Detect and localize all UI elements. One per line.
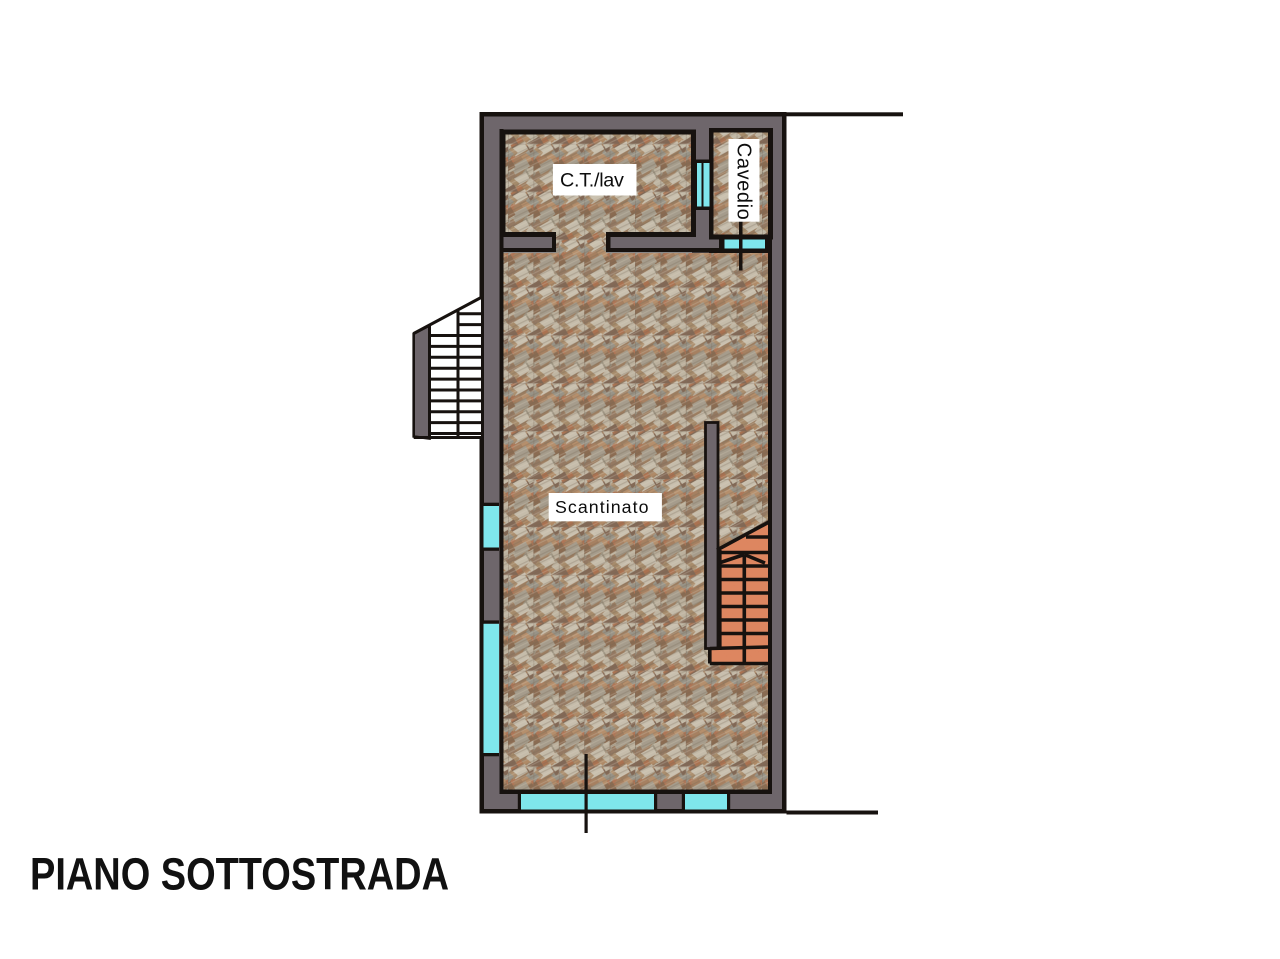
- svg-text:PIANO SOTTOSTRADA: PIANO SOTTOSTRADA: [30, 849, 449, 900]
- svg-text:C.T./lav: C.T./lav: [560, 170, 624, 192]
- svg-text:Scantinato: Scantinato: [555, 497, 649, 517]
- svg-text:Cavedio: Cavedio: [732, 143, 754, 220]
